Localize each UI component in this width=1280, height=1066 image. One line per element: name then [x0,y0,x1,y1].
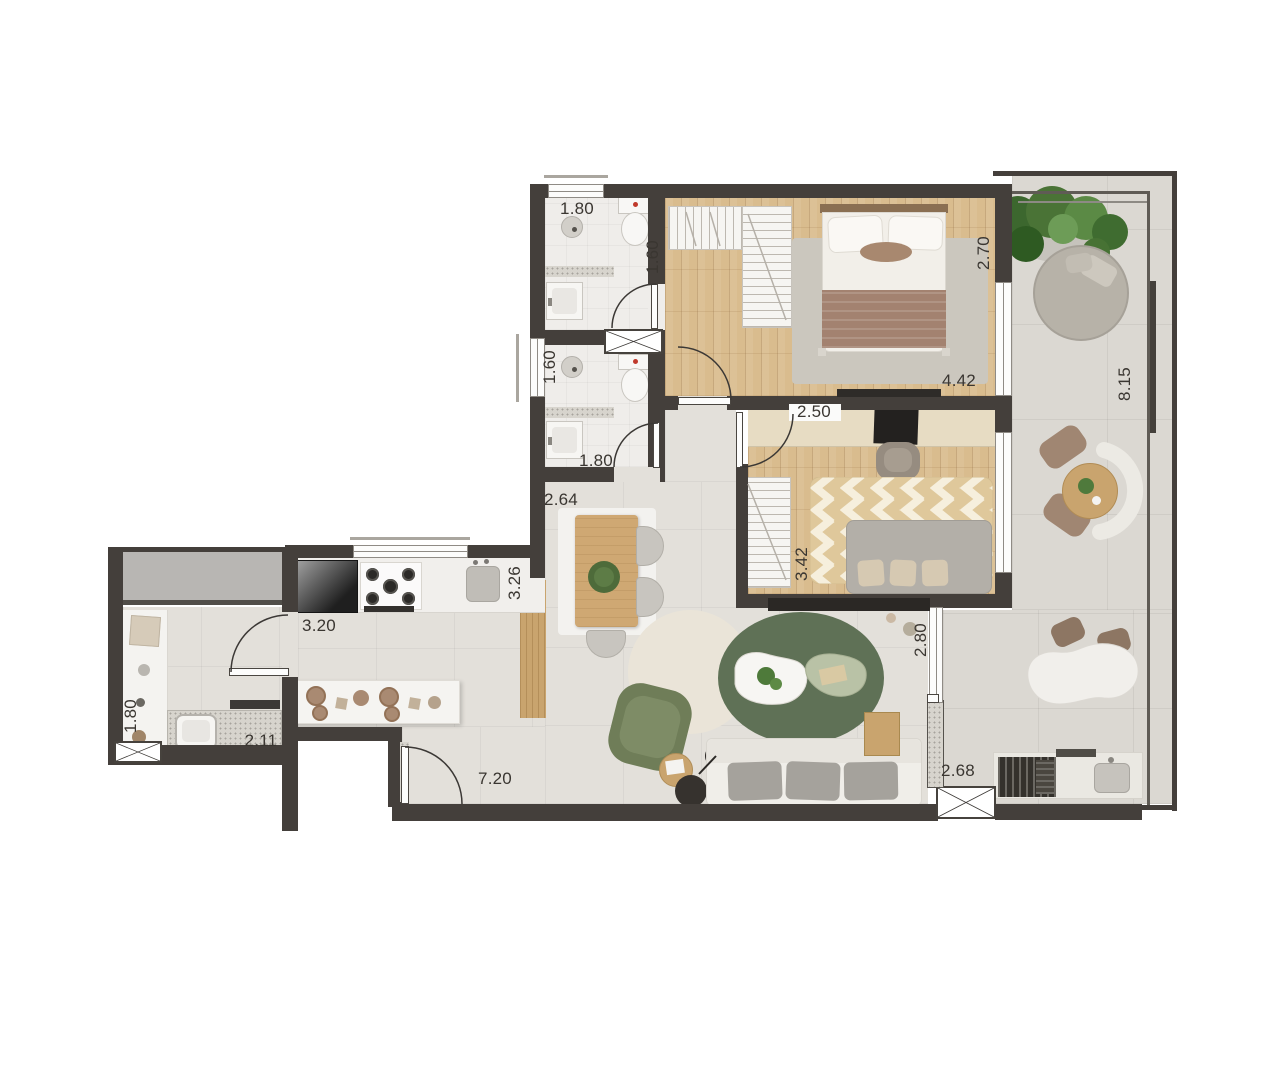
dim-label-bath2-width: 1.80 [579,451,613,471]
dim-label-kitchen-depth: 3.26 [505,566,525,600]
floorplan-canvas: 1.801.601.601.802.704.428.152.503.422.80… [0,0,1280,1066]
dim-label-kitchen-width: 3.20 [302,616,336,636]
dim-label-living-length: 7.20 [478,769,512,789]
dim-label-living-width: 2.80 [911,623,931,657]
dim-label-bedroom2-depth: 3.42 [792,547,812,581]
dim-label-bedroom2-width: 2.50 [797,402,831,422]
dim-label-bath2-depth: 1.60 [540,350,560,384]
dim-label-bedroom1-depth: 2.70 [974,236,994,270]
dim-label-dining-width: 2.64 [544,490,578,510]
dim-label-laundry-width: 2.11 [245,731,278,751]
dim-label-terrace-width: 2.68 [941,761,975,781]
dim-label-bedroom1-width: 4.42 [942,371,976,391]
dim-label-bath1-width: 1.80 [560,199,594,219]
dim-label-laundry-depth: 1.80 [121,699,141,733]
dimension-labels-layer: 1.801.601.601.802.704.428.152.503.422.80… [0,0,1280,1066]
dim-label-bath1-depth: 1.60 [643,240,663,274]
dim-label-balcony-length: 8.15 [1115,367,1135,401]
